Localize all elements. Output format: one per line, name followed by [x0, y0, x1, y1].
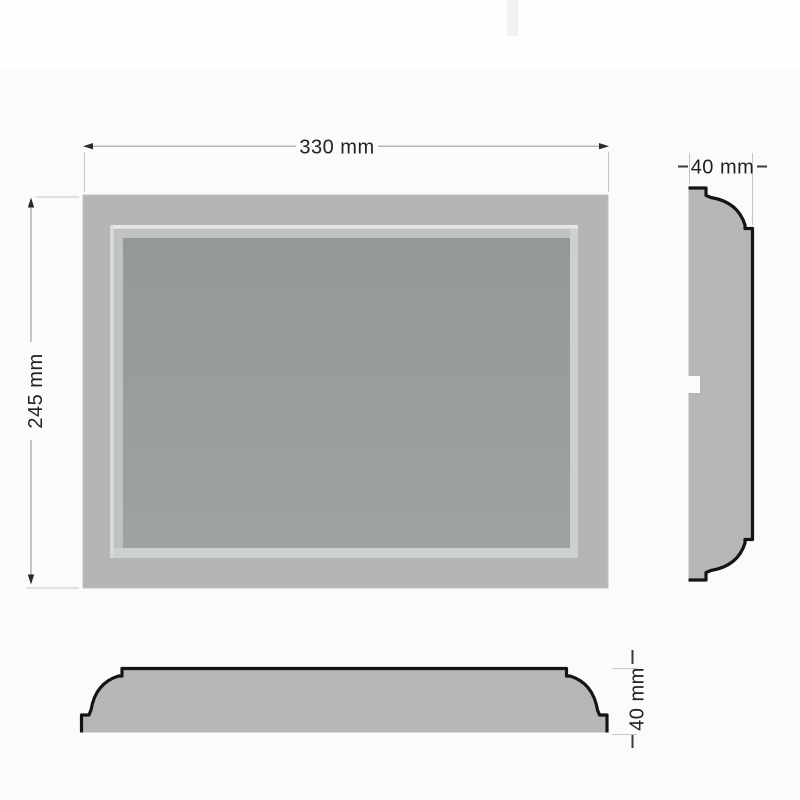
height-arrow-bottom — [28, 575, 34, 585]
depth-bottom-dimension-label: 40 mm — [627, 667, 649, 731]
dimension-depth-bottom: 40 mm — [612, 650, 649, 748]
scan-artifact-sliver — [507, 0, 518, 36]
side-profile-view — [687, 188, 753, 580]
background-top-band — [0, 0, 800, 70]
width-arrow-left — [83, 143, 93, 149]
width-arrow-right — [599, 143, 609, 149]
bottom-profile-fill — [82, 669, 608, 733]
bottom-profile-view — [82, 669, 608, 733]
height-arrow-top — [28, 198, 34, 208]
front-recessed-panel — [123, 238, 570, 548]
front-lip-highlight-left — [110, 225, 114, 558]
dimension-height: 245 mm — [25, 197, 79, 588]
front-lip-highlight-top — [110, 225, 578, 229]
height-dimension-label: 245 mm — [25, 353, 47, 428]
technical-drawing-page: 330 mm 245 mm — [0, 0, 800, 800]
depth-side-dimension-label: 40 mm — [691, 157, 755, 179]
dimension-width: 330 mm — [83, 137, 609, 193]
front-view — [83, 195, 608, 588]
drawing-svg: 330 mm 245 mm — [0, 0, 800, 800]
width-dimension-label: 330 mm — [299, 137, 374, 159]
side-profile-keyhole-notch — [687, 376, 701, 393]
